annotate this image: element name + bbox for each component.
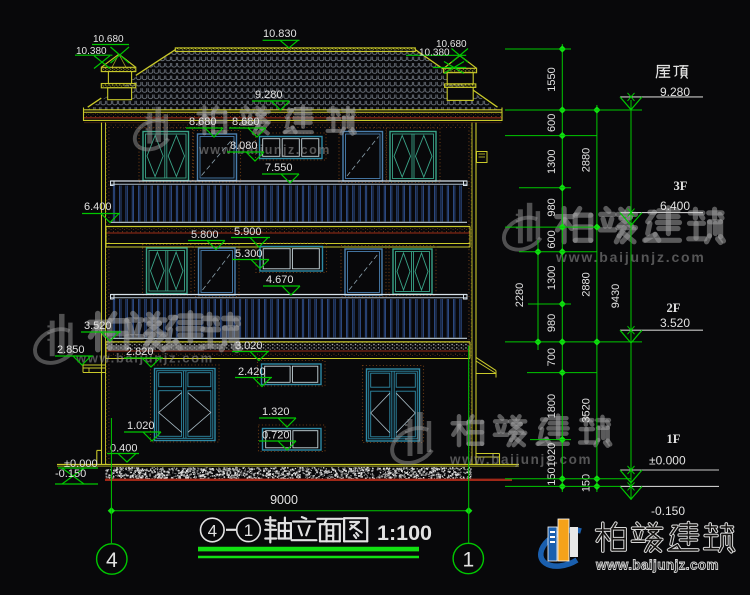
- svg-text:1800: 1800: [546, 394, 558, 418]
- svg-text:3.520: 3.520: [84, 320, 112, 332]
- svg-text:0.400: 0.400: [110, 443, 138, 455]
- svg-text:4: 4: [106, 549, 118, 572]
- svg-text:8.680: 8.680: [232, 116, 260, 128]
- svg-text:8.680: 8.680: [189, 116, 217, 128]
- svg-text:4.670: 4.670: [266, 274, 294, 286]
- svg-text:1.020: 1.020: [127, 420, 155, 432]
- svg-text:1300: 1300: [546, 266, 558, 290]
- svg-text:1: 1: [462, 548, 474, 571]
- svg-text:2.420: 2.420: [238, 366, 266, 378]
- svg-text:3520: 3520: [580, 398, 592, 422]
- svg-text:1300: 1300: [546, 149, 558, 173]
- svg-text:1550: 1550: [546, 67, 558, 91]
- svg-text:6.400: 6.400: [84, 201, 112, 213]
- svg-text:2.820: 2.820: [126, 346, 154, 358]
- svg-text:1F: 1F: [667, 432, 681, 446]
- svg-text:www.baijunjz.com: www.baijunjz.com: [198, 143, 331, 157]
- svg-text:5.900: 5.900: [234, 226, 262, 238]
- svg-text:10.680: 10.680: [93, 34, 124, 45]
- svg-text:600: 600: [546, 114, 558, 132]
- svg-text:9430: 9430: [610, 284, 622, 308]
- svg-text:5.300: 5.300: [235, 248, 263, 260]
- svg-text:0.720: 0.720: [262, 430, 290, 442]
- svg-text:6.400: 6.400: [660, 199, 690, 213]
- svg-text:-0.150: -0.150: [55, 468, 86, 480]
- svg-text:2880: 2880: [580, 148, 592, 172]
- svg-text:8.080: 8.080: [230, 140, 258, 152]
- svg-text:980: 980: [546, 314, 558, 332]
- svg-text:-0.150: -0.150: [651, 504, 685, 518]
- svg-text:600: 600: [546, 230, 558, 248]
- svg-text:7.550: 7.550: [265, 162, 293, 174]
- svg-text:5.800: 5.800: [191, 229, 219, 241]
- svg-text:10.380: 10.380: [419, 48, 450, 59]
- svg-text:1020: 1020: [546, 443, 558, 467]
- svg-text:150: 150: [580, 474, 592, 492]
- svg-text:1.320: 1.320: [262, 406, 290, 418]
- svg-text:150: 150: [546, 467, 558, 485]
- svg-text:±0.000: ±0.000: [649, 454, 686, 468]
- svg-text:980: 980: [546, 198, 558, 216]
- svg-text:3F: 3F: [674, 179, 688, 193]
- svg-text:9000: 9000: [270, 493, 298, 507]
- svg-text:2280: 2280: [514, 283, 526, 307]
- svg-text:3.520: 3.520: [660, 316, 690, 330]
- svg-text:9.280: 9.280: [255, 89, 283, 101]
- svg-text:www.baijunjz.com: www.baijunjz.com: [595, 558, 719, 573]
- svg-text:2F: 2F: [667, 301, 681, 315]
- svg-text:www.baijunjz.com: www.baijunjz.com: [449, 452, 592, 467]
- svg-text:2.850: 2.850: [57, 344, 85, 356]
- svg-text:10.830: 10.830: [263, 28, 297, 40]
- svg-text:1:100: 1:100: [377, 521, 432, 545]
- svg-text:700: 700: [546, 348, 558, 366]
- svg-text:2880: 2880: [580, 272, 592, 296]
- svg-text:1: 1: [244, 521, 253, 540]
- svg-text:4: 4: [208, 521, 217, 540]
- svg-text:3.020: 3.020: [235, 340, 263, 352]
